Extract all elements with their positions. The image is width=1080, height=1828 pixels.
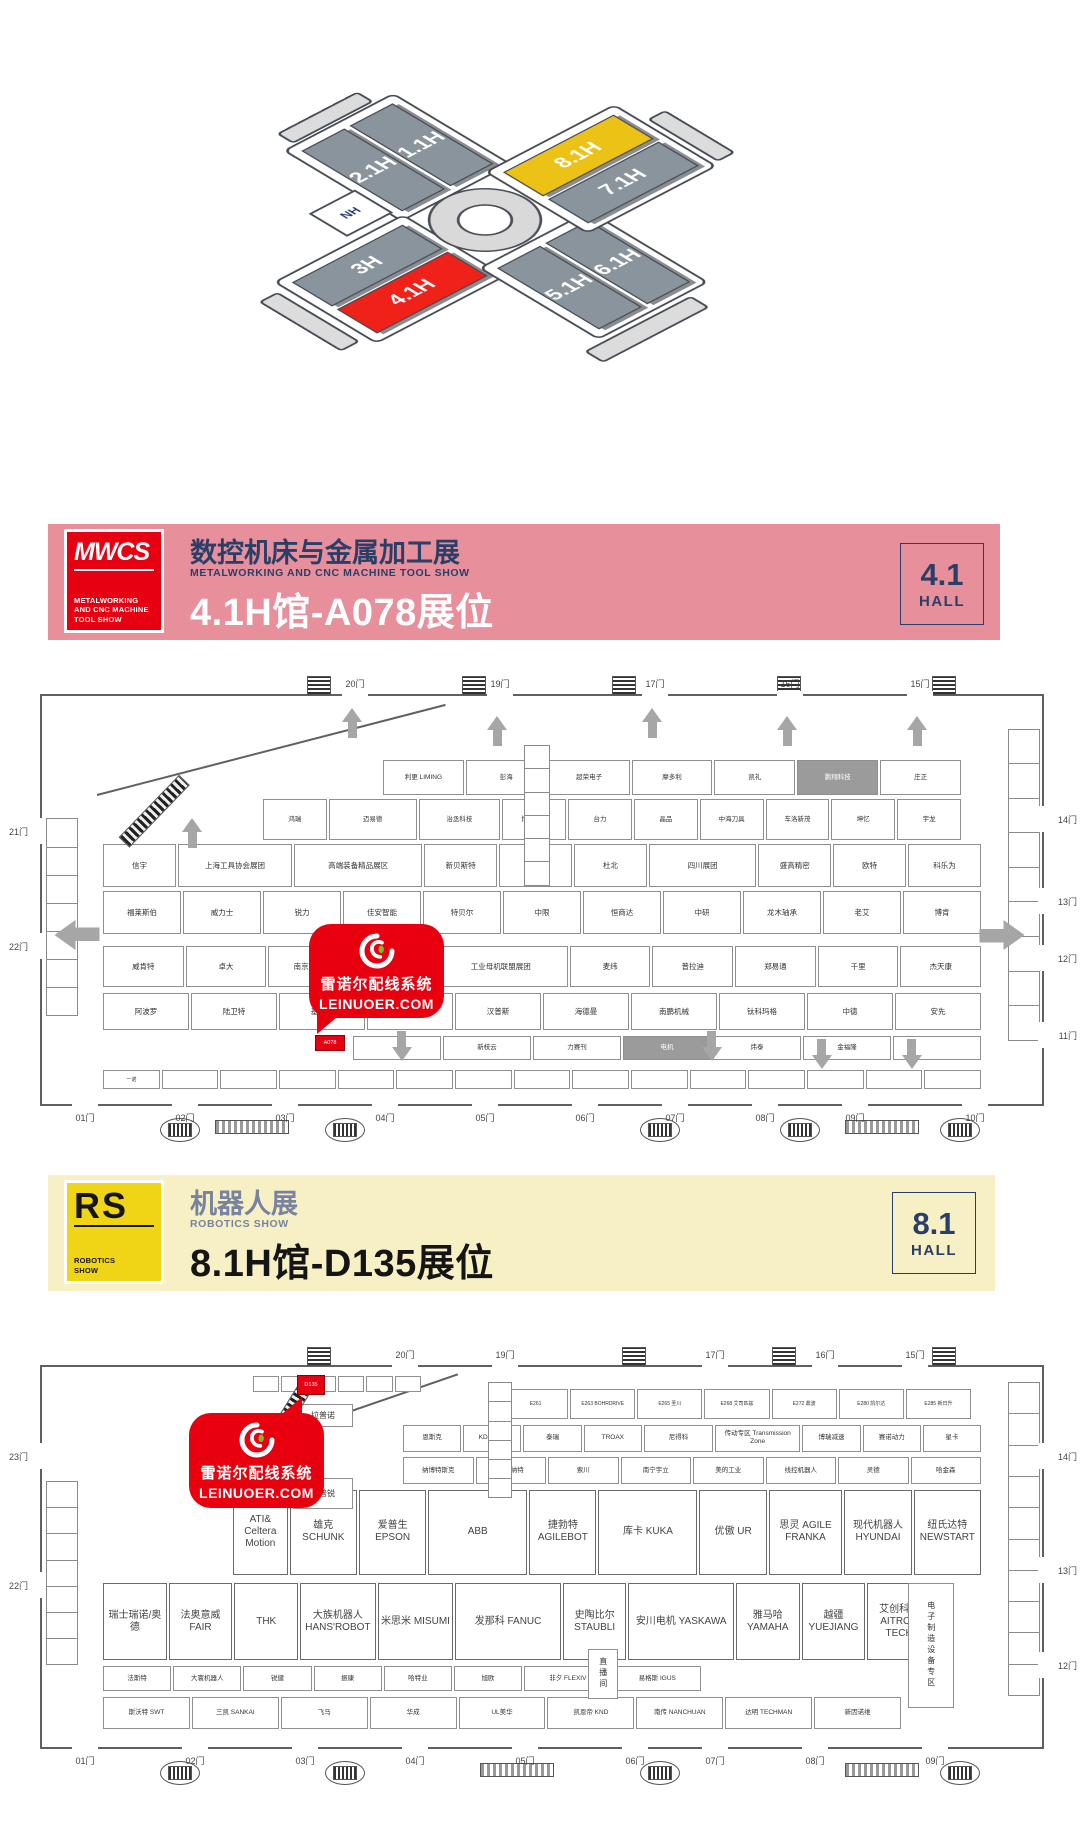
direction-arrow [487, 716, 507, 746]
door-label: 01门 [75, 1754, 94, 1767]
door-label: 03门 [295, 1754, 314, 1767]
booth: 斯沃特 SWT [103, 1697, 190, 1729]
booth: 米思米 MISUMI [378, 1583, 454, 1661]
booth: E268 艾司匹兹 [704, 1389, 769, 1419]
leinuoer-bird-icon [357, 931, 397, 971]
escalator-icon [612, 676, 636, 695]
door-label: 08门 [805, 1754, 824, 1767]
booth: 高端装备精品展区 [294, 844, 422, 887]
booth-row: 新枝云力赛刊电机炜泰金福隆 [352, 1035, 982, 1062]
booth: 钛科玛格 [719, 993, 805, 1030]
booth-row [252, 1375, 422, 1393]
booth: 旭欧 [454, 1666, 522, 1691]
booth [690, 1070, 747, 1088]
booth: 发那科 FANUC [455, 1583, 560, 1661]
booth: E263 BOHRDRIVE [570, 1389, 635, 1419]
moving-walkway-icon [845, 1763, 919, 1777]
booth [279, 1070, 336, 1088]
booth: E272 鼎波 [772, 1389, 837, 1419]
stamp-name-cn: 雷诺尔配线系统 [200, 1462, 312, 1483]
booth: E261 [503, 1389, 568, 1419]
booth: 庄正 [880, 760, 961, 795]
booth: 赛诺动力 [863, 1425, 921, 1452]
booth: 优傲 UR [699, 1490, 766, 1575]
booth [220, 1070, 277, 1088]
booth: 哈金森 [911, 1457, 982, 1484]
booth-location-line: 8.1H馆-D135展位 [190, 1232, 494, 1287]
door-label: 09门 [845, 1111, 864, 1124]
iso-cross-layout: 2.1H 1.1H 3H 4.1H 5.1H 6.1H 8.1H 7.1H NH [174, 46, 796, 394]
door-label: 02门 [175, 1111, 194, 1124]
booth-row: 阿波罗陆卫特基恩士台稳汉普斯海德曼南鹏机械钛科玛格中德安先 [102, 992, 982, 1031]
booth: 盛高精密 [758, 844, 831, 887]
booth: 思灵 AGILE FRANKA [769, 1490, 843, 1575]
booth: 易格斯 IGUS [614, 1666, 701, 1691]
mwcs-logo-text: MWCS [74, 538, 154, 571]
door: 23门 [37, 1443, 46, 1469]
exhibition-location-poster: 2.1H 1.1H 3H 4.1H 5.1H 6.1H 8.1H 7.1H NH… [0, 0, 1080, 1828]
booth: 大族机器人 HANS'ROBOT [300, 1583, 376, 1661]
door-label: 20门 [345, 677, 364, 690]
door-label: 22门 [9, 940, 28, 953]
booth: 泰瑞 [523, 1425, 581, 1452]
door-label: 04门 [405, 1754, 424, 1767]
door-label: 21门 [9, 825, 28, 838]
door: 22门 [37, 933, 46, 959]
booth: 纽氏达特 NEWSTART [914, 1490, 981, 1575]
escalator-icon [325, 1118, 365, 1142]
booth: 一诺 [103, 1070, 160, 1088]
door: 17门 [642, 691, 668, 700]
booth: 普拉迪 [652, 946, 733, 987]
rs-logo-text: RS [74, 1189, 154, 1227]
mwcs-logo-tagline: METALWORKING AND CNC MACHINE TOOL SHOW [74, 596, 154, 624]
booth: 现代机器人 HYUNDAI [844, 1490, 911, 1575]
rs-banner: RS ROBOTICS SHOW 机器人展 ROBOTICS SHOW 8.1H… [48, 1175, 995, 1291]
booth: 杰天康 [900, 946, 981, 987]
booth: 利更 LIMING [383, 760, 464, 795]
booth: 治丞科技 [419, 799, 501, 840]
leinuoer-bird-icon [237, 1420, 277, 1460]
door: 01门 [72, 1100, 98, 1109]
leinuoer-stamp[interactable]: 雷诺尔配线系统 LEINUOER.COM [309, 924, 444, 1018]
booth: 纳博特斯克 [403, 1457, 474, 1484]
booth: 千里 [818, 946, 899, 987]
side-booth-strip [46, 818, 78, 1016]
door-label: 15门 [910, 677, 929, 690]
door: 11门 [1038, 1022, 1047, 1048]
door-label: 16门 [815, 1348, 834, 1361]
booth-row: 斯沃特 SWT三凯 SANKAI飞马华成UL美华凯恩帝 KND南传 NANCHU… [102, 1696, 902, 1730]
booth: E265 圣川 [637, 1389, 702, 1419]
booth: 信宇 [103, 844, 176, 887]
booth: 欧特 [833, 844, 906, 887]
booth-location-line: 4.1H馆-A078展位 [190, 581, 494, 636]
booth-row: 福莱斯伯威力士锐力佳安智能特贝尔中限恒商达中研龙木轴承老艾博肯 [102, 890, 982, 935]
booth: 爱普生 EPSON [359, 1490, 426, 1575]
mwcs-logo: MWCS METALWORKING AND CNC MACHINE TOOL S… [64, 529, 164, 633]
door: 06门 [572, 1100, 598, 1109]
door: 06门 [622, 1743, 648, 1752]
door: 08门 [802, 1743, 828, 1752]
booth: 凯恩帝 KND [547, 1697, 634, 1729]
booth: 美的工业 [693, 1457, 764, 1484]
escalator-icon [622, 1347, 646, 1366]
booth: 传动专区 Transmission Zone [715, 1425, 800, 1452]
booth [924, 1070, 981, 1088]
door-label: 17门 [645, 677, 664, 690]
door-label: 14门 [1058, 813, 1077, 826]
booth: 尼得科 [644, 1425, 713, 1452]
booth: 卓大 [186, 946, 267, 987]
booth [395, 1376, 421, 1392]
booth: 杜北 [574, 844, 647, 887]
mwcs-banner-text: 数控机床与金属加工展 METALWORKING AND CNC MACHINE … [190, 524, 860, 640]
door: 07门 [702, 1743, 728, 1752]
booth-row: E261E263 BOHRDRIVEE265 圣川E268 艾司匹兹E272 鼎… [502, 1388, 972, 1420]
door: 04门 [372, 1100, 398, 1109]
booth: 威力士 [183, 891, 261, 934]
booth: 博瑞减速 [802, 1425, 860, 1452]
booth: 凯礼 [714, 760, 795, 795]
door: 19门 [492, 1362, 518, 1371]
booth: 直播间 [588, 1649, 618, 1698]
door: 16门 [812, 1362, 838, 1371]
booth: 电子制造设备专区 [908, 1583, 954, 1708]
leinuoer-stamp[interactable]: 雷诺尔配线系统 LEINUOER.COM [189, 1413, 324, 1508]
booth: 法斯特 [103, 1666, 171, 1691]
door-label: 12门 [1058, 1659, 1077, 1672]
booth: 工业母机联盟展团 [434, 946, 568, 987]
booth: 哈特业 [384, 1666, 452, 1691]
rs-logo-tagline: ROBOTICS SHOW [74, 1256, 154, 1275]
booth [514, 1070, 571, 1088]
booth: 晶品 [634, 799, 698, 840]
direction-arrow [392, 1031, 412, 1061]
booth-row: 瑞士瑞诺/奥德法奥意威 FAIRTHK大族机器人 HANS'ROBOT米思米 M… [102, 1582, 932, 1662]
direction-arrow [182, 818, 202, 848]
booth: 南传 NANCHUAN [636, 1697, 723, 1729]
booth [253, 1376, 279, 1392]
direction-arrow [812, 1039, 832, 1069]
escalator-icon [462, 676, 486, 695]
door: 13门 [1038, 888, 1047, 914]
booth: 索川 [548, 1457, 619, 1484]
door: 08门 [752, 1100, 778, 1109]
booth: 海德曼 [543, 993, 629, 1030]
booth: 威肯特 [103, 946, 184, 987]
door: 05门 [512, 1743, 538, 1752]
booth [807, 1070, 864, 1088]
booth: UL美华 [459, 1697, 546, 1729]
direction-arrow [980, 920, 1025, 950]
booth: 新枝云 [443, 1036, 531, 1061]
booth: THK [234, 1583, 298, 1661]
hall-8-1-floorplan: 雷诺尔配线系统 LEINUOER.COM E261E263 BOHRDRIVEE… [40, 1365, 1044, 1749]
booth: 汉普斯 [455, 993, 541, 1030]
direction-arrow [702, 1031, 722, 1061]
booth: 恒商达 [583, 891, 661, 934]
direction-arrow [55, 920, 100, 950]
booth: 中研 [663, 891, 741, 934]
booth [631, 1070, 688, 1088]
escalator-icon [780, 1118, 820, 1142]
booth: 科乐为 [908, 844, 981, 887]
door-label: 13门 [1058, 895, 1077, 908]
door-label: 07门 [665, 1111, 684, 1124]
escalator-icon [932, 676, 956, 695]
booth [396, 1070, 453, 1088]
booth [162, 1070, 219, 1088]
booth: 博肯 [903, 891, 981, 934]
booth: ABB [428, 1490, 527, 1575]
door: 02门 [182, 1743, 208, 1752]
booth: E280 凯尔达 [839, 1389, 904, 1419]
door-label: 11门 [1059, 1029, 1077, 1042]
door: 19门 [487, 691, 513, 700]
door-label: 07门 [705, 1754, 724, 1767]
door: 15门 [907, 691, 933, 700]
door-label: 09门 [925, 1754, 944, 1767]
booth: 车洛新茂 [766, 799, 830, 840]
door-label: 03门 [275, 1111, 294, 1124]
show-title-en: METALWORKING AND CNC MACHINE TOOL SHOW [190, 567, 470, 579]
booth: 中限 [503, 891, 581, 934]
door-label: 19门 [495, 1348, 514, 1361]
door: 14门 [1038, 1443, 1047, 1469]
side-booth-strip [1008, 729, 1040, 1041]
door-label: 04门 [375, 1111, 394, 1124]
booth-row: 鸿瑞迈易德治丞科技博时培林台力晶品中海刀具车洛新茂坤忆宇龙 [262, 798, 962, 841]
booth: 捷勃特 AGILEBOT [529, 1490, 596, 1575]
booth: 新因诺维 [814, 1697, 901, 1729]
booth: 摩多利 [632, 760, 713, 795]
booth: 安川电机 YASKAWA [628, 1583, 733, 1661]
venue-overview-map: 2.1H 1.1H 3H 4.1H 5.1H 6.1H 8.1H 7.1H NH [0, 10, 1080, 490]
booth: 越疆 YUEJIANG [802, 1583, 866, 1661]
highlighted-booth: A078 [315, 1035, 345, 1052]
booth [748, 1070, 805, 1088]
booth: 鸿瑞 [263, 799, 327, 840]
door: 07门 [662, 1100, 688, 1109]
side-booth-strip [524, 745, 550, 886]
escalator-icon [307, 676, 331, 695]
show-title-cn: 数控机床与金属加工展 [190, 531, 460, 570]
booth: 法奥意威 FAIR [169, 1583, 233, 1661]
booth: 安先 [895, 993, 981, 1030]
door: 10门 [962, 1100, 988, 1109]
booth: 鹏翔科技 [797, 760, 878, 795]
show-title-cn: 机器人展 [190, 1182, 298, 1221]
escalator-icon [307, 1347, 331, 1366]
booth: 龙木轴承 [743, 891, 821, 934]
booth: 振康 [314, 1666, 382, 1691]
door: 09门 [922, 1743, 948, 1752]
booth: 飞马 [281, 1697, 368, 1729]
door-label: 08门 [755, 1111, 774, 1124]
side-booth-strip [1008, 1382, 1040, 1696]
door: 17门 [702, 1362, 728, 1371]
booth: 华成 [370, 1697, 457, 1729]
booth: 陆卫特 [191, 993, 277, 1030]
booth: 郑易通 [735, 946, 816, 987]
direction-arrow [907, 716, 927, 746]
booth-row: 一诺 [102, 1069, 982, 1089]
booth: 灵德 [838, 1457, 909, 1484]
door: 02门 [172, 1100, 198, 1109]
booth: 库卡 KUKA [598, 1490, 697, 1575]
booth: 迈易德 [329, 799, 417, 840]
booth [572, 1070, 629, 1088]
booth: E285 新日升 [906, 1389, 971, 1419]
booth-row: 威肯特卓大南京工艺萨科朗德工业母机联盟展团麦纬普拉迪郑易通千里杰天康 [102, 945, 982, 988]
door: 12门 [1038, 945, 1047, 971]
direction-arrow [642, 708, 662, 738]
door-label: 16门 [780, 677, 799, 690]
booth: 线控机器人 [766, 1457, 837, 1484]
booth: 雅马哈 YAMAHA [736, 1583, 800, 1661]
door: 16门 [777, 691, 803, 700]
booth: 南鹏机械 [631, 993, 717, 1030]
booth: 超荣电子 [549, 760, 630, 795]
booth-row: 利更 LIMING彭海超荣电子摩多利凯礼鹏翔科技庄正 [382, 759, 962, 796]
hall-4-1-floorplan: 雷诺尔配线系统 LEINUOER.COM 利更 LIMING彭海超荣电子摩多利凯… [40, 694, 1044, 1106]
show-title-en: ROBOTICS SHOW [190, 1218, 289, 1230]
door-label: 13门 [1058, 1564, 1077, 1577]
booth: 达明 TECHMAN [725, 1697, 812, 1729]
door: 22门 [37, 1572, 46, 1598]
booth: 新贝斯特 [424, 844, 497, 887]
booth: 恩斯克 [403, 1425, 461, 1452]
door-label: 15门 [905, 1348, 924, 1361]
door-label: 20门 [395, 1348, 414, 1361]
escalator-icon [940, 1761, 980, 1785]
direction-arrow [777, 716, 797, 746]
booth: 瑞士瑞诺/奥德 [103, 1583, 167, 1661]
booth: 中德 [807, 993, 893, 1030]
escalator-icon [640, 1761, 680, 1785]
booth [338, 1070, 395, 1088]
door-label: 12门 [1058, 952, 1077, 965]
rs-banner-text: 机器人展 ROBOTICS SHOW 8.1H馆-D135展位 [190, 1175, 855, 1291]
door: 13门 [1038, 1557, 1047, 1583]
stamp-name-cn: 雷诺尔配线系统 [320, 973, 432, 994]
rs-logo: RS ROBOTICS SHOW [64, 1180, 164, 1284]
booth: 大寰机器人 [173, 1666, 241, 1691]
booth: 南宁宇立 [621, 1457, 692, 1484]
hall-8-1-badge: 8.1 HALL [892, 1192, 976, 1274]
door: 20门 [342, 691, 368, 700]
door-label: 14门 [1058, 1450, 1077, 1463]
door-label: 10门 [965, 1111, 984, 1124]
door: 03门 [292, 1743, 318, 1752]
stamp-domain: LEINUOER.COM [199, 1485, 314, 1501]
booth: 力赛刊 [533, 1036, 621, 1061]
door-label: 06门 [625, 1754, 644, 1767]
direction-arrow [902, 1039, 922, 1069]
booth: 福莱斯伯 [103, 891, 181, 934]
escalator-icon [325, 1761, 365, 1785]
booth: 锐健 [243, 1666, 311, 1691]
door: 04门 [402, 1743, 428, 1752]
booth: 阿波罗 [103, 993, 189, 1030]
booth [866, 1070, 923, 1088]
door-label: 01门 [75, 1111, 94, 1124]
door-label: 23门 [9, 1450, 28, 1463]
door-label: 17门 [705, 1348, 724, 1361]
door-label: 05门 [515, 1754, 534, 1767]
booth: 上海工具协会展团 [178, 844, 292, 887]
booth: 炜泰 [713, 1036, 801, 1061]
booth: 老艾 [823, 891, 901, 934]
side-booth-strip [46, 1481, 78, 1665]
door: 14门 [1038, 806, 1047, 832]
side-booth-strip [488, 1382, 512, 1498]
booth [455, 1070, 512, 1088]
escalator-icon [772, 1347, 796, 1366]
highlighted-booth: D135 [297, 1375, 325, 1395]
door: 01门 [72, 1743, 98, 1752]
booth: 电机 [623, 1036, 711, 1061]
door-label: 06门 [575, 1111, 594, 1124]
door: 05门 [472, 1100, 498, 1109]
booth: 坤忆 [831, 799, 895, 840]
booth: 麦纬 [570, 946, 651, 987]
door: 21门 [37, 818, 46, 844]
booth: 星卡 [923, 1425, 981, 1452]
hall-4-1-badge: 4.1 HALL [900, 543, 984, 625]
booth: 四川展团 [649, 844, 756, 887]
door: 12门 [1038, 1652, 1047, 1678]
mwcs-banner: MWCS METALWORKING AND CNC MACHINE TOOL S… [48, 524, 1000, 640]
door: 15门 [902, 1362, 928, 1371]
escalator-icon [932, 1347, 956, 1366]
door-label: 05门 [475, 1111, 494, 1124]
door-label: 22门 [9, 1579, 28, 1592]
door: 09门 [842, 1100, 868, 1109]
direction-arrow [342, 708, 362, 738]
door-label: 19门 [490, 677, 509, 690]
booth [338, 1376, 364, 1392]
booth: 台力 [568, 799, 632, 840]
door-label: 02门 [185, 1754, 204, 1767]
door: 03门 [272, 1100, 298, 1109]
booth: TROAX [584, 1425, 642, 1452]
booth: 宇龙 [897, 799, 961, 840]
booth: 中海刀具 [700, 799, 764, 840]
booth [366, 1376, 392, 1392]
booth: 三凯 SANKAI [192, 1697, 279, 1729]
stamp-domain: LEINUOER.COM [319, 996, 434, 1012]
door: 20门 [392, 1362, 418, 1371]
